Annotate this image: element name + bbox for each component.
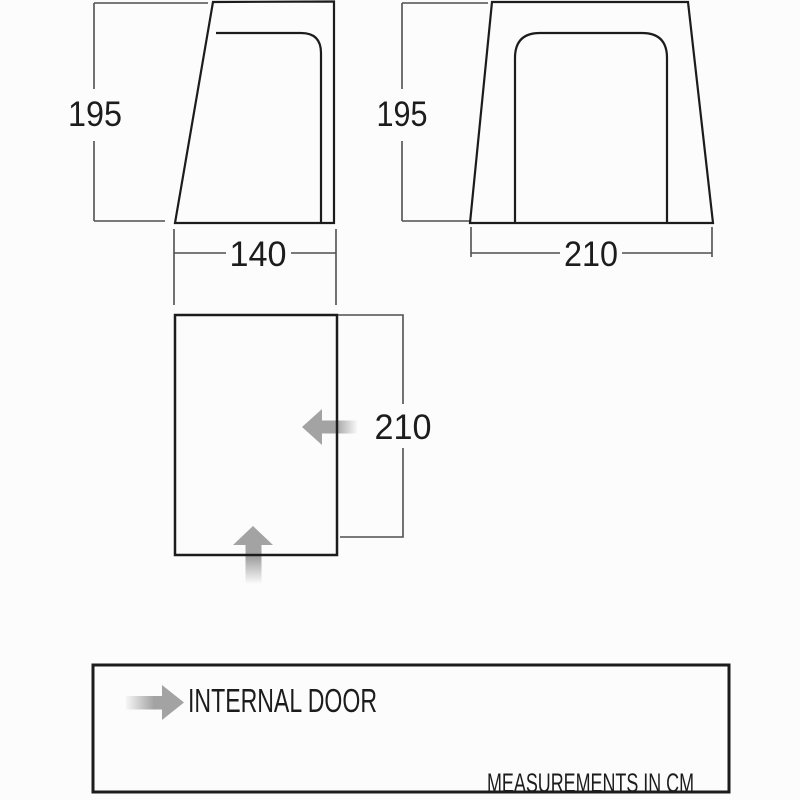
front-view-outline — [470, 2, 713, 223]
front-view: 195 210 — [377, 2, 714, 274]
internal-door-arrow-right-icon — [126, 685, 184, 720]
front-width-label: 210 — [564, 235, 618, 274]
legend-door-label: INTERNAL DOOR — [188, 682, 377, 719]
dimension-bracket-top — [338, 315, 403, 404]
side-height-label: 195 — [68, 95, 122, 134]
front-width-dimension: 210 — [471, 227, 712, 274]
side-width-dimension: 140 — [174, 229, 336, 305]
floor-plan: 210 — [175, 315, 432, 584]
front-view-door-arch — [515, 33, 667, 223]
side-view-inner-door-line — [216, 33, 321, 223]
dimension-bracket-bottom — [340, 448, 403, 537]
tent-dimensions-diagram: 195 140 195 — [0, 0, 800, 800]
internal-door-arrow-left-icon — [302, 409, 358, 445]
front-height-dimension: 195 — [377, 3, 489, 221]
side-view: 195 140 — [68, 2, 336, 306]
floor-plan-depth-label: 210 — [375, 408, 432, 447]
side-width-label: 140 — [230, 235, 287, 274]
measurements-note: MEASUREMENTS IN CM — [487, 768, 694, 798]
side-height-dimension: 195 — [68, 3, 208, 221]
diagram-canvas: 195 140 195 — [0, 0, 800, 800]
front-height-label: 195 — [377, 95, 428, 134]
legend: INTERNAL DOOR MEASUREMENTS IN CM — [93, 665, 729, 798]
